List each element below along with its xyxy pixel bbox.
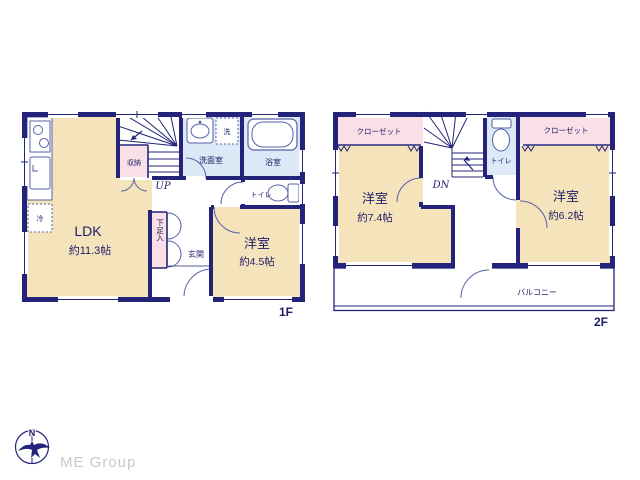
label-toilet-1f: トイレ	[251, 192, 272, 199]
compass-icon: N	[16, 428, 51, 464]
label-floor-1f: 1F	[279, 305, 293, 319]
label-bathroom: 浴室	[265, 157, 281, 167]
label-washroom: 洗面室	[199, 155, 223, 165]
balcony-door-arc	[461, 270, 489, 298]
label-balcony: バルコニー	[517, 288, 557, 297]
logo-area: N ME Group	[16, 428, 137, 471]
toilet-2f-icon	[492, 119, 511, 151]
label-closet-left: クローゼット	[357, 126, 402, 136]
compass-n-label: N	[29, 428, 36, 438]
label-2f-west-room-name: 洋室	[362, 191, 388, 206]
bathtub-icon	[248, 119, 297, 150]
label-ldk-size: 約11.3帖	[69, 243, 112, 257]
toilet-1f-icon	[268, 184, 299, 202]
label-2f-east-room-name: 洋室	[553, 189, 579, 204]
label-2f-west-room-size: 約7.4帖	[357, 211, 393, 224]
floor-plan-page: LDK 約11.3帖 洋室 約4.5帖 洗面室 浴室 トイレ 玄関 収納 下足入…	[0, 0, 640, 480]
label-stairs-up: UP	[155, 181, 170, 192]
1f-west-room	[211, 207, 300, 297]
label-2f-east-room-size: 約6.2帖	[548, 209, 584, 222]
stairs-down-icon	[424, 112, 483, 177]
2f-west-room	[336, 146, 455, 263]
washbasin-icon	[187, 118, 213, 143]
label-ldk-name: LDK	[74, 223, 102, 239]
floor-plan-drawing: LDK 約11.3帖 洋室 約4.5帖 洗面室 浴室 トイレ 玄関 収納 下足入…	[0, 0, 640, 480]
label-1f-west-room-name: 洋室	[244, 236, 270, 251]
label-1f-west-room-size: 約4.5帖	[239, 255, 275, 268]
label-entrance: 玄関	[188, 249, 204, 259]
label-floor-2f: 2F	[594, 315, 608, 329]
label-stairs-down: DN	[432, 180, 451, 191]
compass-bird-shape	[18, 441, 50, 458]
kitchen-counter-icon	[27, 117, 52, 200]
label-toilet-2f: トイレ	[491, 158, 512, 165]
2f-east-room	[516, 146, 610, 263]
label-washer: 洗	[224, 127, 231, 136]
label-fridge: 冷	[37, 214, 44, 223]
floor-1f-plan: LDK 約11.3帖 洋室 約4.5帖 洗面室 浴室 トイレ 玄関 収納 下足入…	[21, 111, 306, 319]
label-storage: 収納	[127, 158, 141, 167]
floor-2f-plan: 洋室 約7.4帖 洋室 約6.2帖 クローゼット クローゼット トイレ バルコニ…	[332, 111, 616, 329]
balcony-door-opening	[455, 262, 492, 269]
company-logo-text: ME Group	[60, 454, 136, 471]
label-shoe-box: 下足入	[155, 219, 164, 242]
label-closet-right: クローゼット	[544, 125, 589, 135]
